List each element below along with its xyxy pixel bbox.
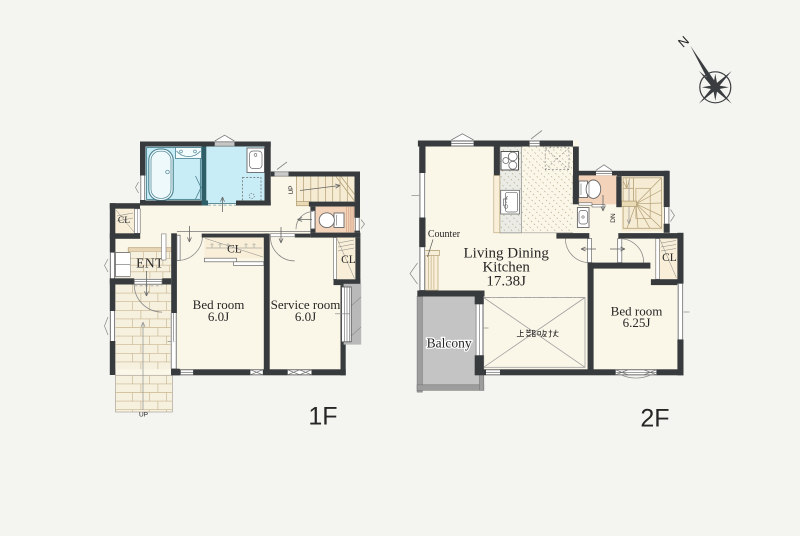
svg-text:UP: UP: [288, 185, 295, 194]
svg-text:6.0J: 6.0J: [295, 309, 316, 324]
svg-text:6.0J: 6.0J: [208, 309, 229, 324]
svg-text:CL: CL: [227, 244, 242, 256]
svg-text:1F: 1F: [308, 403, 337, 431]
svg-text:6.25J: 6.25J: [623, 315, 651, 330]
svg-text:ENT: ENT: [136, 256, 164, 271]
svg-text:CL: CL: [118, 216, 130, 226]
svg-text:CL: CL: [662, 252, 677, 264]
svg-text:17.38J: 17.38J: [486, 274, 526, 290]
svg-text:Balcony: Balcony: [427, 335, 472, 350]
svg-text:CL: CL: [341, 254, 356, 266]
svg-text:DN: DN: [610, 213, 617, 223]
svg-text:Counter: Counter: [428, 229, 461, 240]
svg-text:2F: 2F: [640, 405, 669, 433]
svg-text:UP: UP: [139, 412, 148, 419]
